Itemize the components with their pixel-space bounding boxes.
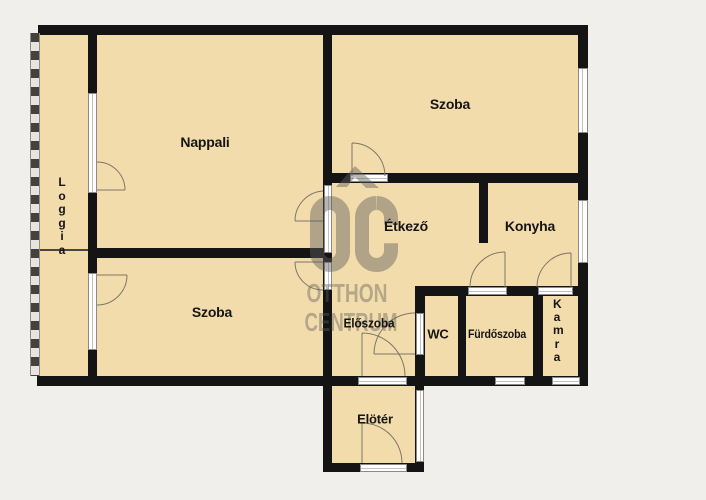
room-label-furdoszoba: Fürdőszoba bbox=[468, 327, 526, 341]
room-label-konyha: Konyha bbox=[505, 218, 555, 234]
room-label-szoba-top: Szoba bbox=[430, 96, 470, 112]
door-arc-szoba-loggia bbox=[97, 275, 127, 305]
watermark-line1: OTTHON bbox=[307, 278, 388, 308]
room-label-loggia: Loggia bbox=[58, 176, 66, 257]
watermark-letter-c bbox=[362, 203, 391, 265]
door-arc-eloter-entrance bbox=[362, 423, 402, 463]
watermark-roof-icon bbox=[336, 166, 379, 188]
room-label-szoba-bottom: Szoba bbox=[192, 304, 232, 320]
door-arc-kamra bbox=[537, 253, 571, 287]
door-arc-nappali-loggia bbox=[97, 162, 125, 190]
room-label-nappali: Nappali bbox=[180, 134, 229, 150]
room-label-kamra: Kamra bbox=[553, 298, 561, 364]
room-label-eloszoba: Előszoba bbox=[343, 316, 394, 331]
room-label-wc: WC bbox=[427, 327, 448, 342]
watermark-letter-o bbox=[317, 203, 343, 265]
door-arc-furdoszoba bbox=[470, 252, 505, 287]
room-label-etkezo: Étkező bbox=[384, 218, 428, 234]
floorplan: OTTHON CENTRUM Nappali Szoba Szoba Étkez… bbox=[0, 0, 706, 500]
door-arcs-and-watermark-layer: OTTHON CENTRUM bbox=[0, 0, 706, 500]
room-label-eloter: Elötér bbox=[357, 412, 393, 427]
